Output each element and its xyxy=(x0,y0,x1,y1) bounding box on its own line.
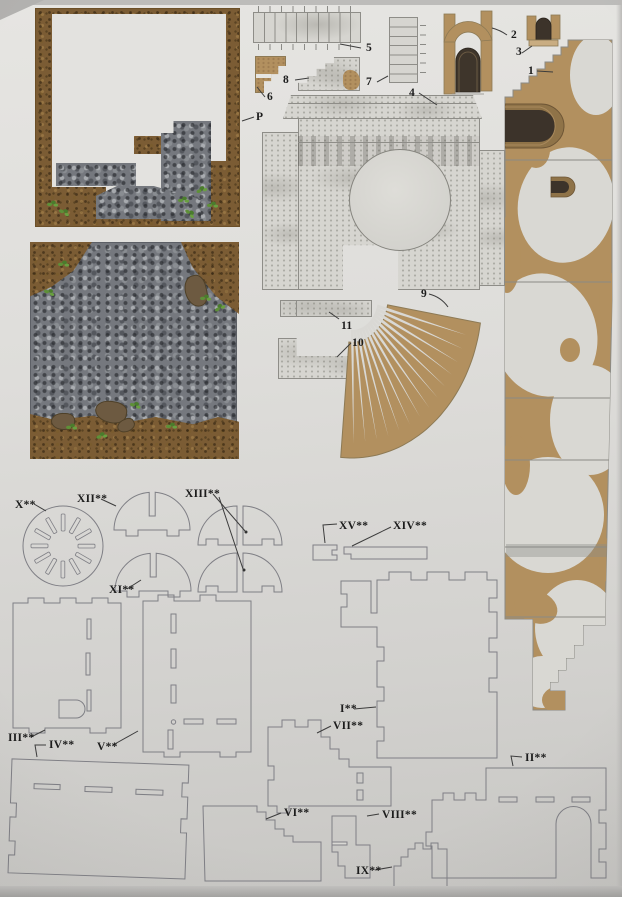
label-part-iv: IV** xyxy=(49,739,74,751)
label-part-iii: III** xyxy=(8,732,34,744)
label-part-1: 1 xyxy=(528,65,534,77)
label-part-xii: XII** xyxy=(77,493,107,505)
label-part-ii: II** xyxy=(525,752,547,764)
label-part-3: 3 xyxy=(516,46,522,58)
label-part-4: 4 xyxy=(409,87,415,99)
part-xii-dome-half xyxy=(114,492,190,536)
label-part-viii: VIII** xyxy=(382,809,417,821)
label-part-ix: IX** xyxy=(356,865,381,877)
part-xiii-quarter-4 xyxy=(243,553,282,592)
label-part-10: 10 xyxy=(352,337,364,349)
photo-bottom-edge xyxy=(0,886,622,897)
part-iii-door-slot xyxy=(59,700,85,718)
label-part-x: X** xyxy=(15,499,36,511)
label-part-8: 8 xyxy=(283,74,289,86)
part-xiv-long-bar xyxy=(344,547,427,559)
part-1-wall-strip xyxy=(481,35,622,714)
label-part-5: 5 xyxy=(366,42,372,54)
part-ix-stair-blank xyxy=(394,843,447,888)
part-x-slotted-disc xyxy=(23,506,103,586)
label-part-6: 6 xyxy=(267,91,273,103)
label-part-11: 11 xyxy=(341,320,352,332)
label-part-7: 7 xyxy=(366,76,372,88)
label-part-vi: VI** xyxy=(284,807,309,819)
part-xiii-quarter-3 xyxy=(198,553,237,592)
part-iii-wall-blank xyxy=(13,598,121,733)
label-part-xiv: XIV** xyxy=(393,520,427,532)
part-xiii-quarter-2 xyxy=(243,506,282,545)
label-part-9: 9 xyxy=(421,288,427,300)
part-1-side-window xyxy=(551,177,575,197)
label-part-xv: XV** xyxy=(339,520,368,532)
part-i-wall-blank xyxy=(341,572,497,758)
part-9-dome-fan xyxy=(341,305,481,459)
part-ii-arch-wall-blank xyxy=(426,768,606,878)
part-vii-wall-blank xyxy=(268,720,391,813)
part-2-door-panel xyxy=(456,48,480,92)
part-2-arched-door xyxy=(444,11,492,94)
label-part-i: I** xyxy=(340,703,357,715)
parts-sheet-photo: P 5 6 8 7 4 2 3 1 9 11 10 X** XII** XIII… xyxy=(0,0,622,897)
label-part-v: V** xyxy=(97,741,118,753)
part-iv-wall-blank xyxy=(8,759,189,879)
part-xiii-quarter-1 xyxy=(198,506,237,545)
label-part-vii: VII** xyxy=(333,720,363,732)
label-part-xiii: XIII** xyxy=(185,488,220,500)
part-1-gray-band xyxy=(506,544,608,557)
label-part-p: P xyxy=(256,111,263,123)
part-1-side-door xyxy=(505,104,564,148)
part-v-wall-blank xyxy=(143,595,251,757)
label-part-2: 2 xyxy=(511,29,517,41)
part-3-niche xyxy=(527,15,560,46)
label-part-xi: XI** xyxy=(109,584,134,596)
part-xv-small-plate xyxy=(313,545,337,560)
